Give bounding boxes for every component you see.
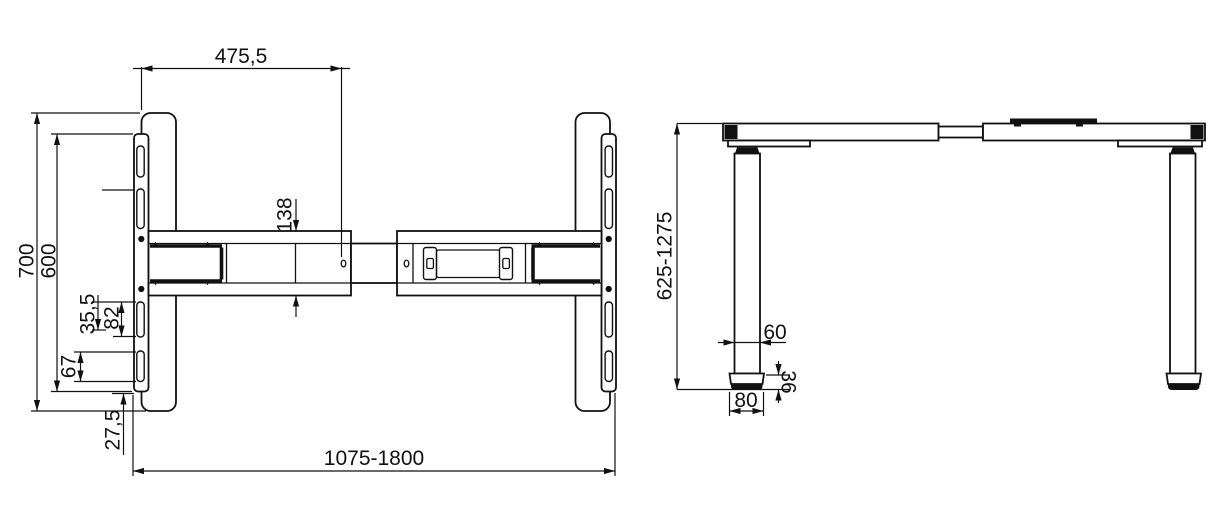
slot — [137, 351, 144, 382]
slot — [137, 189, 144, 229]
dim-label: 475,5 — [215, 45, 268, 68]
slot — [605, 351, 612, 382]
slot — [137, 302, 144, 337]
dim-label: 138 — [274, 197, 297, 232]
crossbeam — [149, 231, 602, 296]
slot — [605, 146, 612, 177]
desk-frame-drawing: 475,5 700 600 — [0, 0, 1223, 519]
dim-label: 35,5 — [77, 294, 100, 335]
left-leg — [735, 148, 761, 374]
dim-label: 36 — [777, 370, 800, 393]
dim-label: 1075-1800 — [324, 447, 424, 470]
slot — [605, 302, 612, 337]
dim-foot-height: 36 — [766, 361, 800, 403]
dim-foot-width: 80 — [730, 389, 764, 416]
screw-hole — [138, 236, 144, 242]
foot-pad — [1168, 384, 1200, 390]
right-leg — [1170, 148, 1196, 374]
dim-lower-slot-length: 67 — [58, 352, 137, 382]
dim-upper-slot-length: 82 — [101, 302, 137, 337]
mounting-plate — [728, 141, 810, 147]
dim-bracket-end-offset: 27,5 — [102, 394, 135, 456]
dim-bracket-length: 600 — [38, 134, 134, 392]
dim-label: 80 — [734, 389, 757, 412]
right-bracket — [602, 134, 617, 392]
left-bracket — [134, 134, 149, 392]
dim-label: 60 — [763, 321, 786, 344]
dim-label: 27,5 — [102, 410, 125, 451]
corner-bracket — [1191, 125, 1204, 139]
clip — [500, 248, 513, 280]
dim-label: 67 — [58, 355, 81, 378]
slot — [605, 189, 612, 229]
beam-connector — [351, 244, 397, 284]
top-view: 475,5 700 600 — [16, 45, 617, 476]
corner-bracket — [725, 125, 738, 139]
clip — [424, 248, 437, 280]
beam-inner-tube-side — [939, 127, 984, 138]
dim-label: 82 — [101, 306, 124, 329]
screw-hole — [606, 236, 612, 242]
screw-hole — [606, 286, 612, 292]
dim-label: 625-1275 — [654, 212, 677, 301]
screw-hole — [138, 286, 144, 292]
technical-drawing-canvas: 475,5 700 600 — [0, 0, 1223, 519]
dim-height-range: 625-1275 — [654, 124, 791, 390]
dim-label: 700 — [16, 243, 39, 278]
left-foot-side — [730, 374, 765, 391]
dim-label: 600 — [38, 243, 61, 278]
side-view: 625-1275 60 36 — [654, 119, 1206, 417]
side-view-dimensions: 625-1275 60 36 — [654, 124, 800, 417]
right-foot-side — [1167, 374, 1202, 391]
slot — [137, 146, 144, 177]
mounting-plate — [1118, 141, 1202, 147]
beam-side — [723, 124, 1205, 147]
dim-frame-width-range: 1075-1800 — [133, 393, 615, 476]
